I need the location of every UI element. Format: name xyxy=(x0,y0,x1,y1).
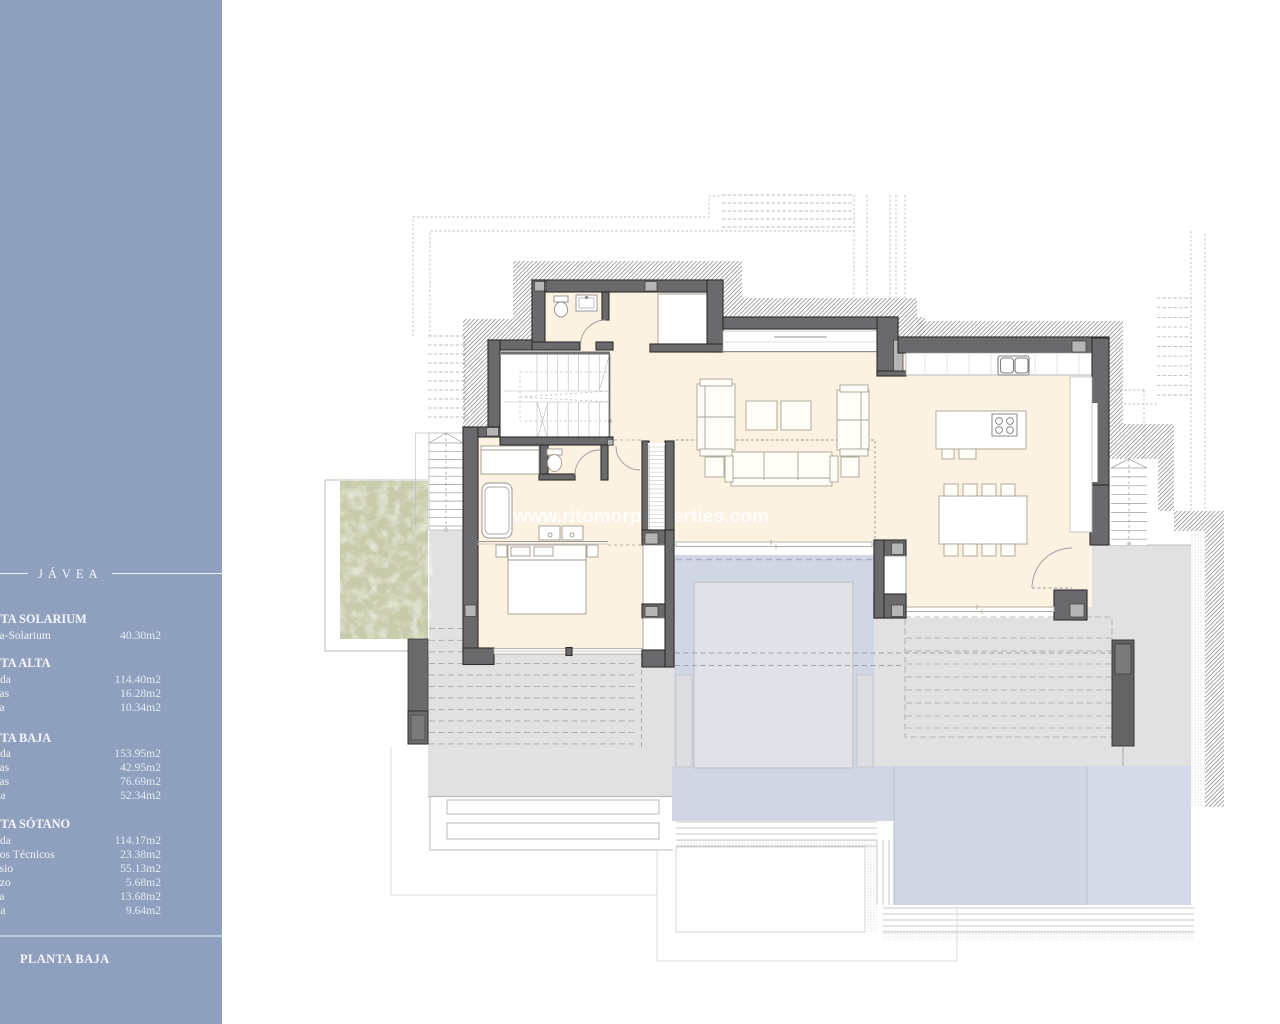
svg-text:Terraza: Terraza xyxy=(0,890,5,903)
svg-text:10.34m2: 10.34m2 xyxy=(120,701,161,714)
svg-text:Construida: Construida xyxy=(0,834,11,847)
svg-text:42.95m2: 42.95m2 xyxy=(120,761,161,774)
svg-text:Construida: Construida xyxy=(0,673,11,686)
svg-text:40.30m2: 40.30m2 xyxy=(120,629,161,642)
svg-text:PLANTA BAJA: PLANTA BAJA xyxy=(0,731,51,745)
svg-text:Piscina: Piscina xyxy=(0,789,6,802)
svg-text:Terrazas: Terrazas xyxy=(0,761,10,774)
svg-text:JÁVEA: JÁVEA xyxy=(38,567,103,581)
svg-text:Terrazas: Terrazas xyxy=(0,775,10,788)
svg-text:Terraza: Terraza xyxy=(0,701,5,714)
svg-text:55.13m2: 55.13m2 xyxy=(120,862,161,875)
svg-text:PLANTA BAJA: PLANTA BAJA xyxy=(20,952,109,966)
svg-text:PLANTA SOLARIUM: PLANTA SOLARIUM xyxy=(0,612,87,626)
svg-text:153.95m2: 153.95m2 xyxy=(114,747,161,760)
svg-text:Pozo: Pozo xyxy=(0,876,11,889)
svg-text:Terrazas: Terrazas xyxy=(0,687,10,700)
svg-text:PLANTA ALTA: PLANTA ALTA xyxy=(0,656,51,670)
svg-text:114.17m2: 114.17m2 xyxy=(115,834,161,847)
svg-text:76.69m2: 76.69m2 xyxy=(120,775,161,788)
svg-text:Terraza-Solarium: Terraza-Solarium xyxy=(0,629,51,642)
svg-text:Piscina: Piscina xyxy=(0,904,6,917)
svg-text:23.38m2: 23.38m2 xyxy=(120,848,161,861)
svg-text:Gimnasio: Gimnasio xyxy=(0,862,13,875)
svg-text:www.ritomorproperties.com: www.ritomorproperties.com xyxy=(512,506,769,527)
svg-text:114.40m2: 114.40m2 xyxy=(115,673,161,686)
svg-text:Cuartos Técnicos: Cuartos Técnicos xyxy=(0,848,55,861)
svg-text:9.64m2: 9.64m2 xyxy=(126,904,161,917)
svg-text:Construida: Construida xyxy=(0,747,11,760)
svg-text:5.68m2: 5.68m2 xyxy=(126,876,161,889)
svg-text:52.34m2: 52.34m2 xyxy=(120,789,161,802)
svg-text:16.28m2: 16.28m2 xyxy=(120,687,161,700)
svg-text:PLANTA SÓTANO: PLANTA SÓTANO xyxy=(0,817,70,831)
svg-text:13.68m2: 13.68m2 xyxy=(120,890,161,903)
